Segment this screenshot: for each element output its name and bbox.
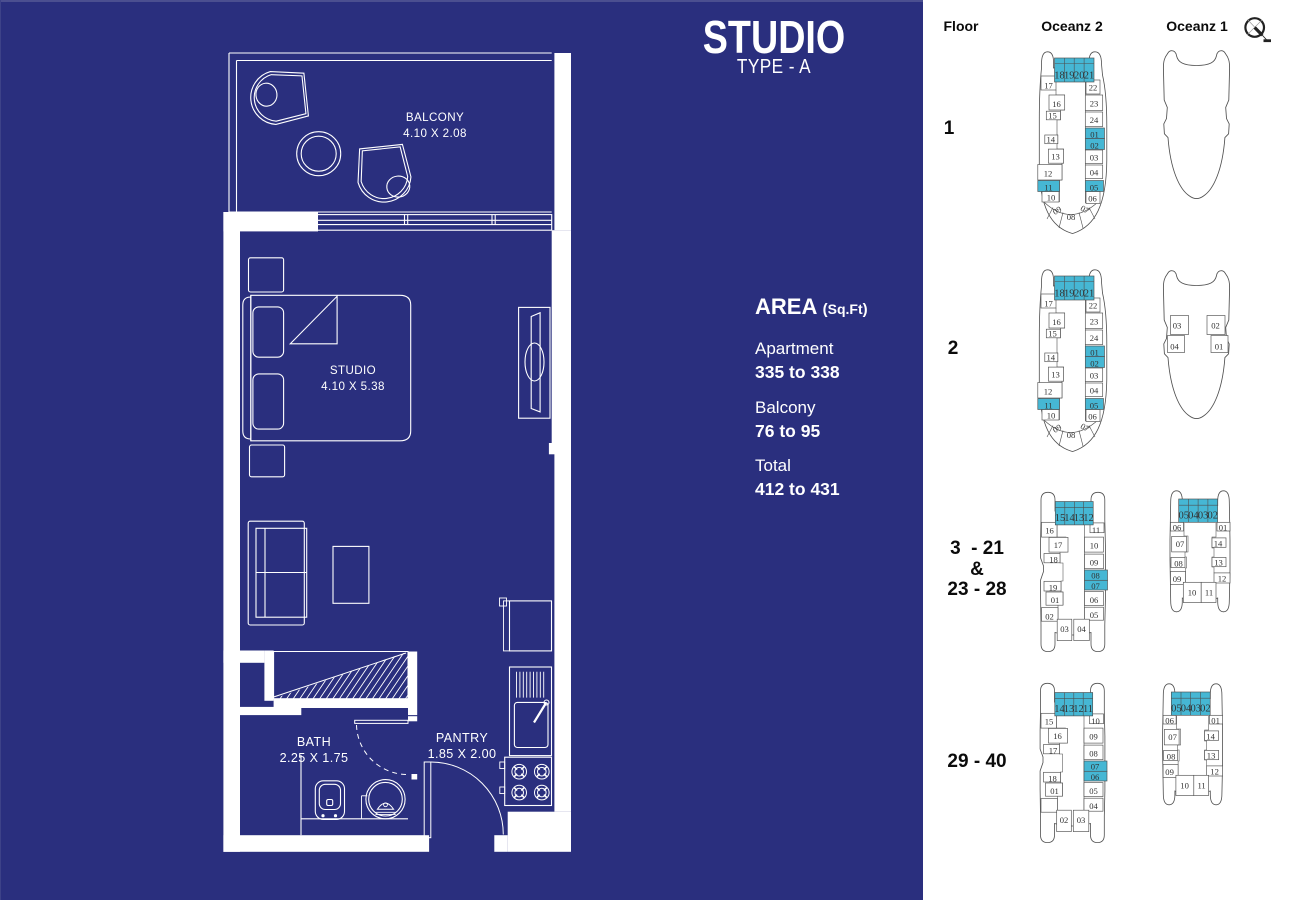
svg-text:06: 06 [1090,595,1099,605]
svg-text:10: 10 [1047,411,1056,421]
svg-text:15: 15 [1048,329,1057,339]
svg-text:03: 03 [1090,371,1099,381]
svg-text:07: 07 [1168,732,1177,742]
svg-text:16: 16 [1045,526,1054,536]
svg-text:23: 23 [1090,317,1099,327]
svg-text:11: 11 [1205,588,1213,598]
svg-text:13: 13 [1051,152,1060,162]
svg-text:04: 04 [1077,624,1086,634]
svg-text:02: 02 [1090,359,1099,369]
svg-text:14: 14 [1214,539,1223,549]
svg-text:18: 18 [1048,774,1057,784]
svg-text:14: 14 [1047,135,1056,145]
svg-text:10: 10 [1180,781,1189,791]
svg-text:22: 22 [1089,83,1098,93]
svg-text:11: 11 [1197,781,1205,791]
svg-text:18: 18 [1049,555,1058,565]
svg-text:16: 16 [1053,731,1062,741]
svg-text:04: 04 [1090,168,1099,178]
svg-text:17: 17 [1044,81,1053,91]
svg-text:15: 15 [1045,717,1054,727]
svg-text:08: 08 [1174,559,1183,569]
svg-text:08: 08 [1167,752,1176,762]
svg-text:03: 03 [1173,321,1182,331]
svg-text:06: 06 [1088,194,1097,204]
svg-text:03: 03 [1090,153,1099,163]
svg-text:04: 04 [1170,342,1179,352]
svg-text:06: 06 [1173,523,1182,533]
svg-text:24: 24 [1090,333,1099,343]
svg-text:02: 02 [1208,511,1219,522]
svg-text:07: 07 [1091,581,1100,591]
svg-text:12: 12 [1218,574,1227,584]
svg-text:03: 03 [1060,624,1069,634]
svg-text:03: 03 [1077,815,1086,825]
svg-text:11: 11 [1092,525,1100,535]
svg-text:12: 12 [1083,513,1094,524]
svg-text:16: 16 [1052,317,1061,327]
svg-text:02: 02 [1045,612,1054,622]
svg-text:09: 09 [1173,574,1182,584]
svg-text:09: 09 [1165,767,1174,777]
svg-text:01: 01 [1215,342,1224,352]
svg-text:12: 12 [1044,169,1053,179]
svg-text:10: 10 [1047,193,1056,203]
svg-text:05: 05 [1090,183,1099,193]
svg-text:01: 01 [1090,130,1099,140]
svg-text:02: 02 [1200,704,1211,715]
svg-text:01: 01 [1051,595,1060,605]
svg-text:06: 06 [1165,716,1174,726]
svg-text:11: 11 [1044,183,1052,193]
svg-text:05: 05 [1089,786,1098,796]
svg-text:05: 05 [1090,401,1099,411]
svg-text:08: 08 [1089,749,1098,759]
svg-text:15: 15 [1048,111,1057,121]
svg-text:01: 01 [1050,786,1059,796]
svg-text:13: 13 [1207,751,1216,761]
svg-text:02: 02 [1060,815,1069,825]
svg-text:02: 02 [1090,141,1099,151]
svg-text:13: 13 [1214,558,1223,568]
svg-text:17: 17 [1049,746,1058,756]
svg-text:09: 09 [1089,732,1098,742]
svg-text:22: 22 [1089,301,1098,311]
svg-text:21: 21 [1084,288,1095,299]
svg-text:17: 17 [1054,540,1063,550]
svg-text:01: 01 [1090,348,1099,358]
svg-text:12: 12 [1044,387,1053,397]
svg-text:06: 06 [1091,772,1100,782]
svg-text:06: 06 [1088,412,1097,422]
svg-text:08: 08 [1067,430,1076,440]
svg-text:10: 10 [1091,716,1100,726]
svg-text:13: 13 [1051,370,1060,380]
svg-text:16: 16 [1052,99,1061,109]
svg-text:17: 17 [1044,299,1053,309]
svg-text:19: 19 [1049,583,1058,593]
svg-text:09: 09 [1090,558,1099,568]
svg-text:07: 07 [1176,539,1185,549]
svg-text:24: 24 [1090,115,1099,125]
svg-text:10: 10 [1090,541,1099,551]
svg-text:21: 21 [1084,70,1095,81]
svg-text:11: 11 [1044,401,1052,411]
svg-text:01: 01 [1211,716,1220,726]
svg-text:14: 14 [1047,353,1056,363]
svg-text:05: 05 [1090,610,1099,620]
svg-text:14: 14 [1206,732,1215,742]
svg-text:23: 23 [1090,99,1099,109]
svg-text:12: 12 [1210,767,1219,777]
svg-text:02: 02 [1211,321,1220,331]
svg-text:04: 04 [1089,801,1098,811]
svg-text:08: 08 [1091,571,1100,581]
svg-text:07: 07 [1091,762,1100,772]
svg-text:11: 11 [1083,704,1093,715]
svg-text:01: 01 [1219,523,1228,533]
svg-text:10: 10 [1188,588,1197,598]
svg-text:08: 08 [1067,212,1076,222]
svg-text:04: 04 [1090,386,1099,396]
